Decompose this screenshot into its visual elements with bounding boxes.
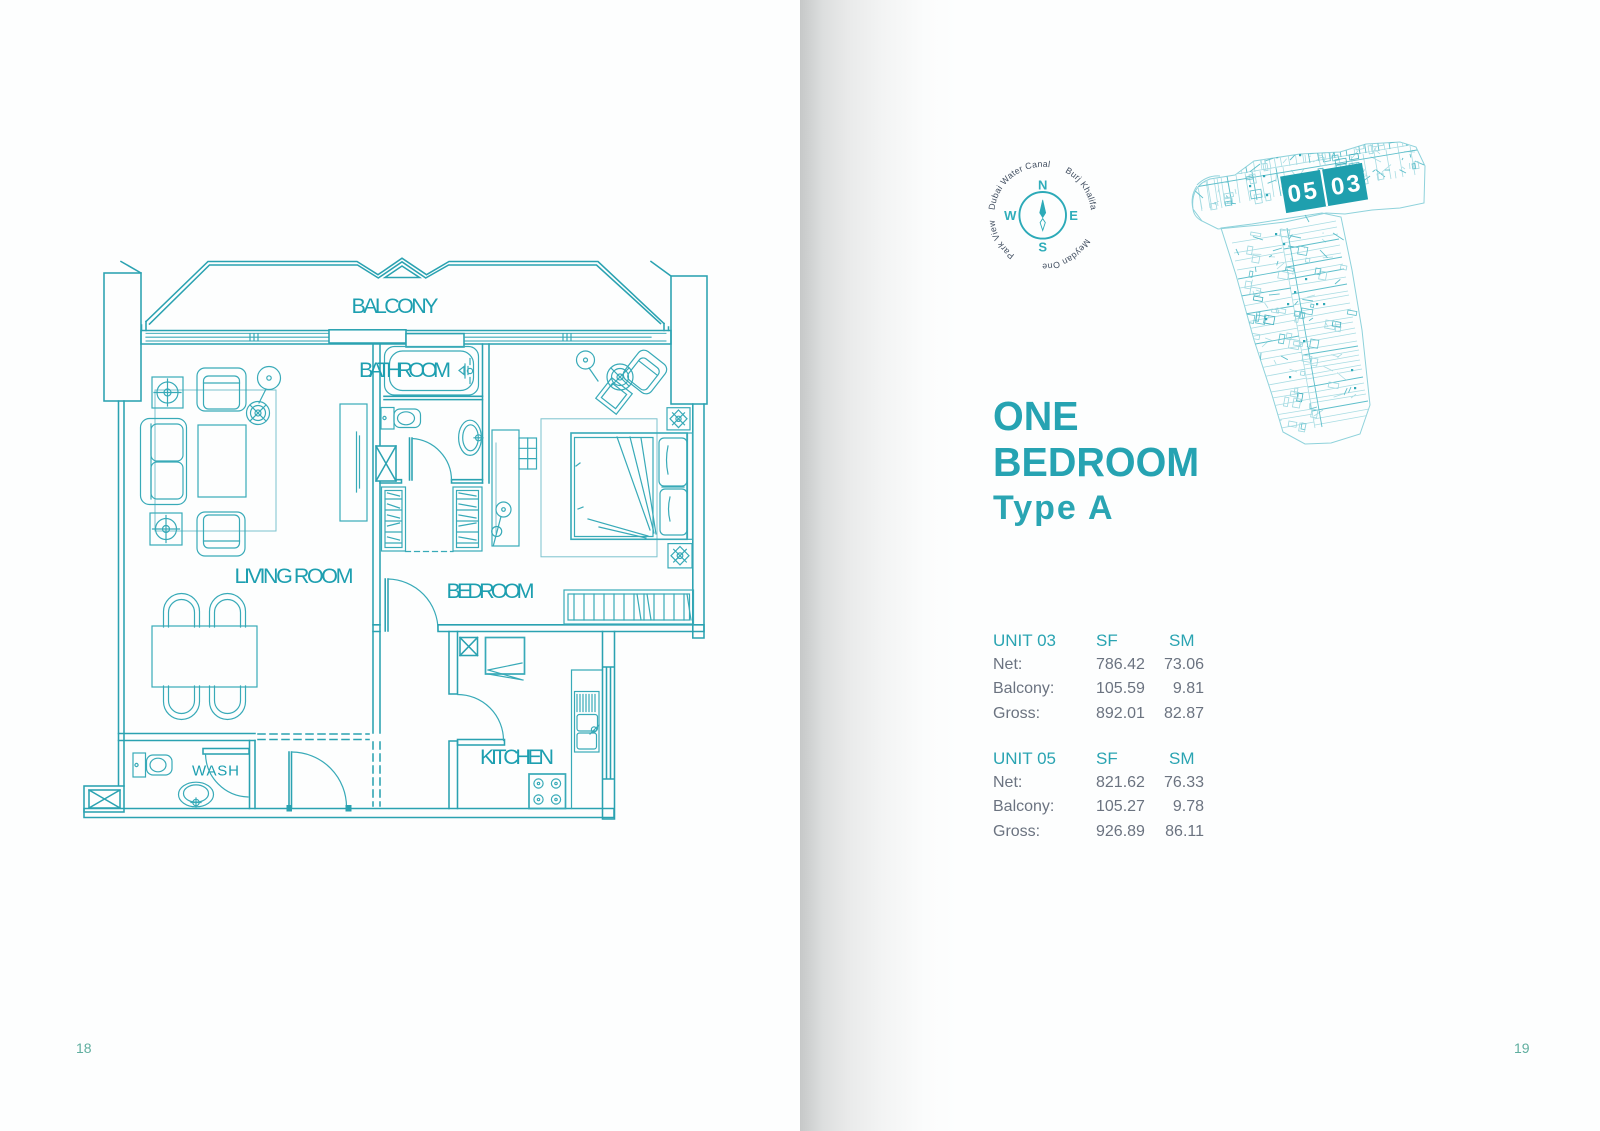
svg-text:Burj Khalifa: Burj Khalifa	[1064, 165, 1099, 210]
svg-text:WASH: WASH	[192, 763, 241, 780]
svg-text:BATHROOM: BATHROOM	[359, 358, 453, 382]
svg-text:05: 05	[1286, 177, 1322, 209]
svg-text:03: 03	[1329, 169, 1365, 201]
svg-text:BEDROOM: BEDROOM	[447, 579, 537, 603]
svg-text:N: N	[1038, 178, 1047, 193]
svg-text:KITCHEN: KITCHEN	[480, 745, 556, 769]
svg-text:BALCONY: BALCONY	[352, 294, 441, 318]
svg-text:Park View: Park View	[986, 219, 1016, 261]
svg-text:E: E	[1069, 208, 1078, 223]
svg-text:Meydan One: Meydan One	[1042, 237, 1092, 272]
svg-text:S: S	[1038, 240, 1047, 255]
svg-text:LIVING ROOM: LIVING ROOM	[235, 564, 356, 588]
svg-text:W: W	[1004, 208, 1017, 223]
